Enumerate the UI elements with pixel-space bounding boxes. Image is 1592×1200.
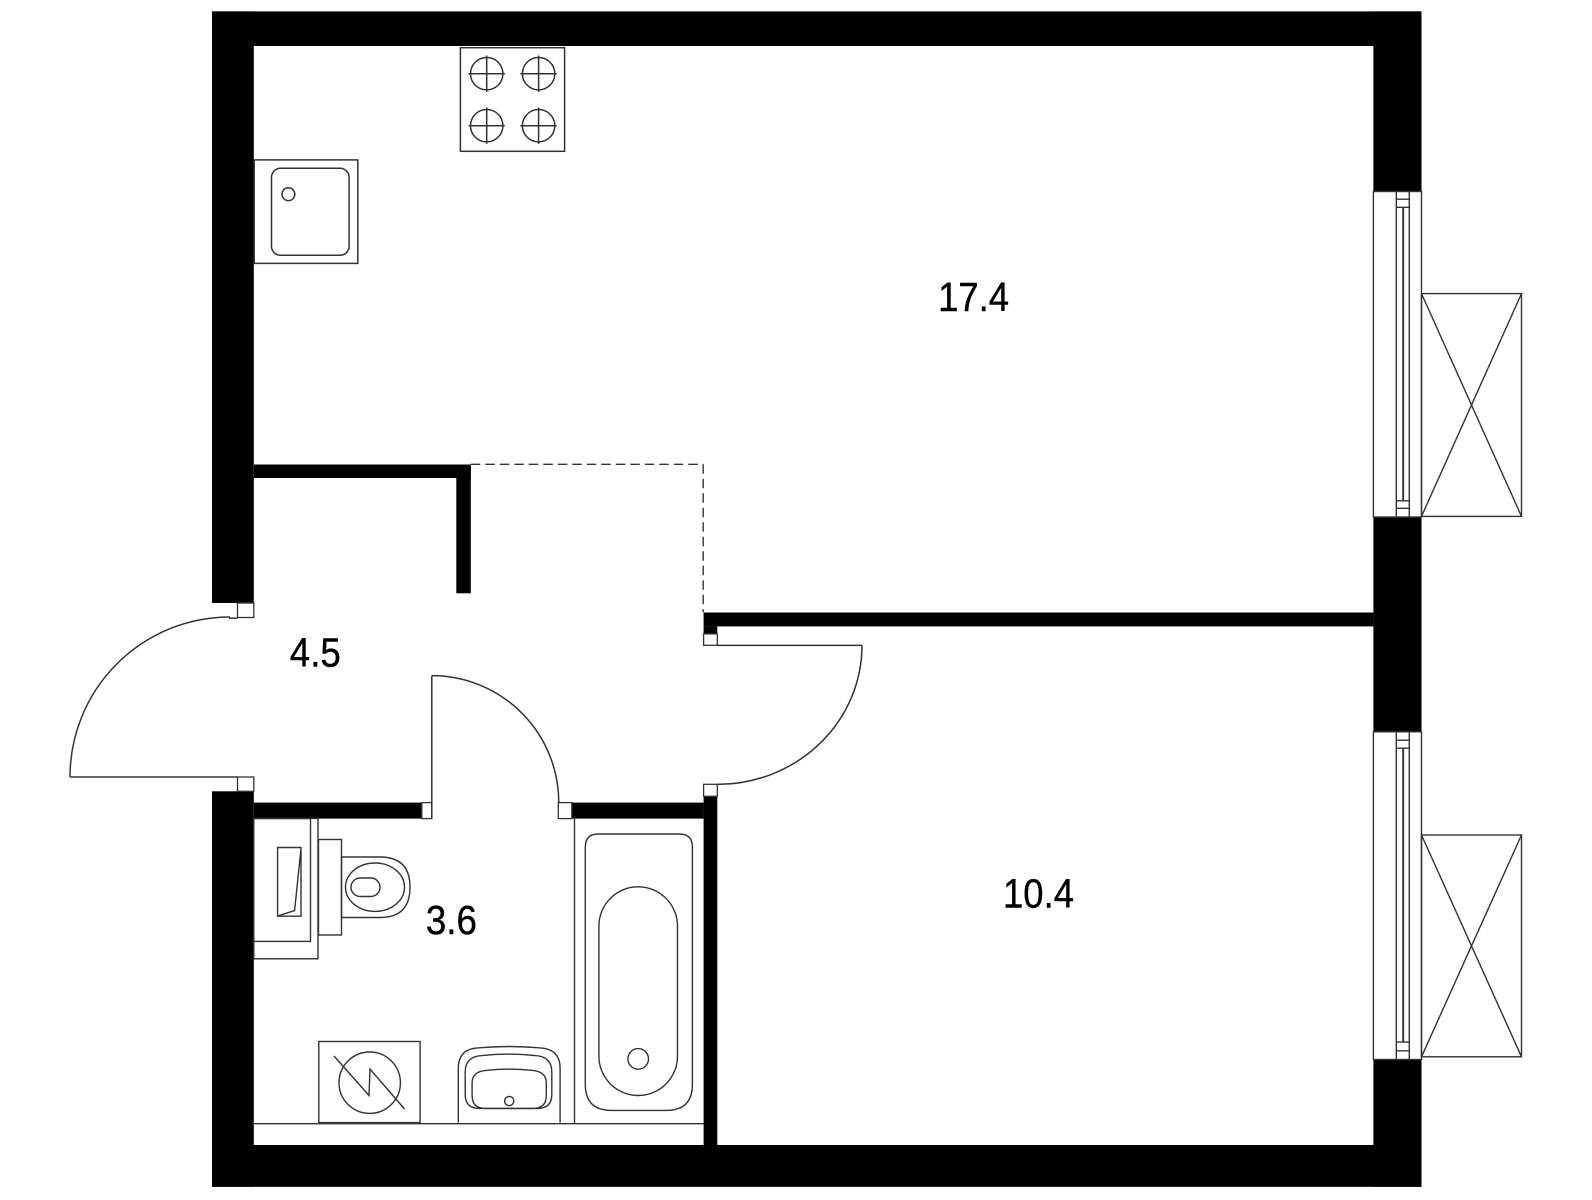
svg-text:17.4: 17.4 bbox=[938, 274, 1009, 320]
svg-text:3.6: 3.6 bbox=[426, 897, 477, 943]
svg-text:10.4: 10.4 bbox=[1003, 871, 1074, 917]
svg-text:4.5: 4.5 bbox=[290, 630, 341, 676]
